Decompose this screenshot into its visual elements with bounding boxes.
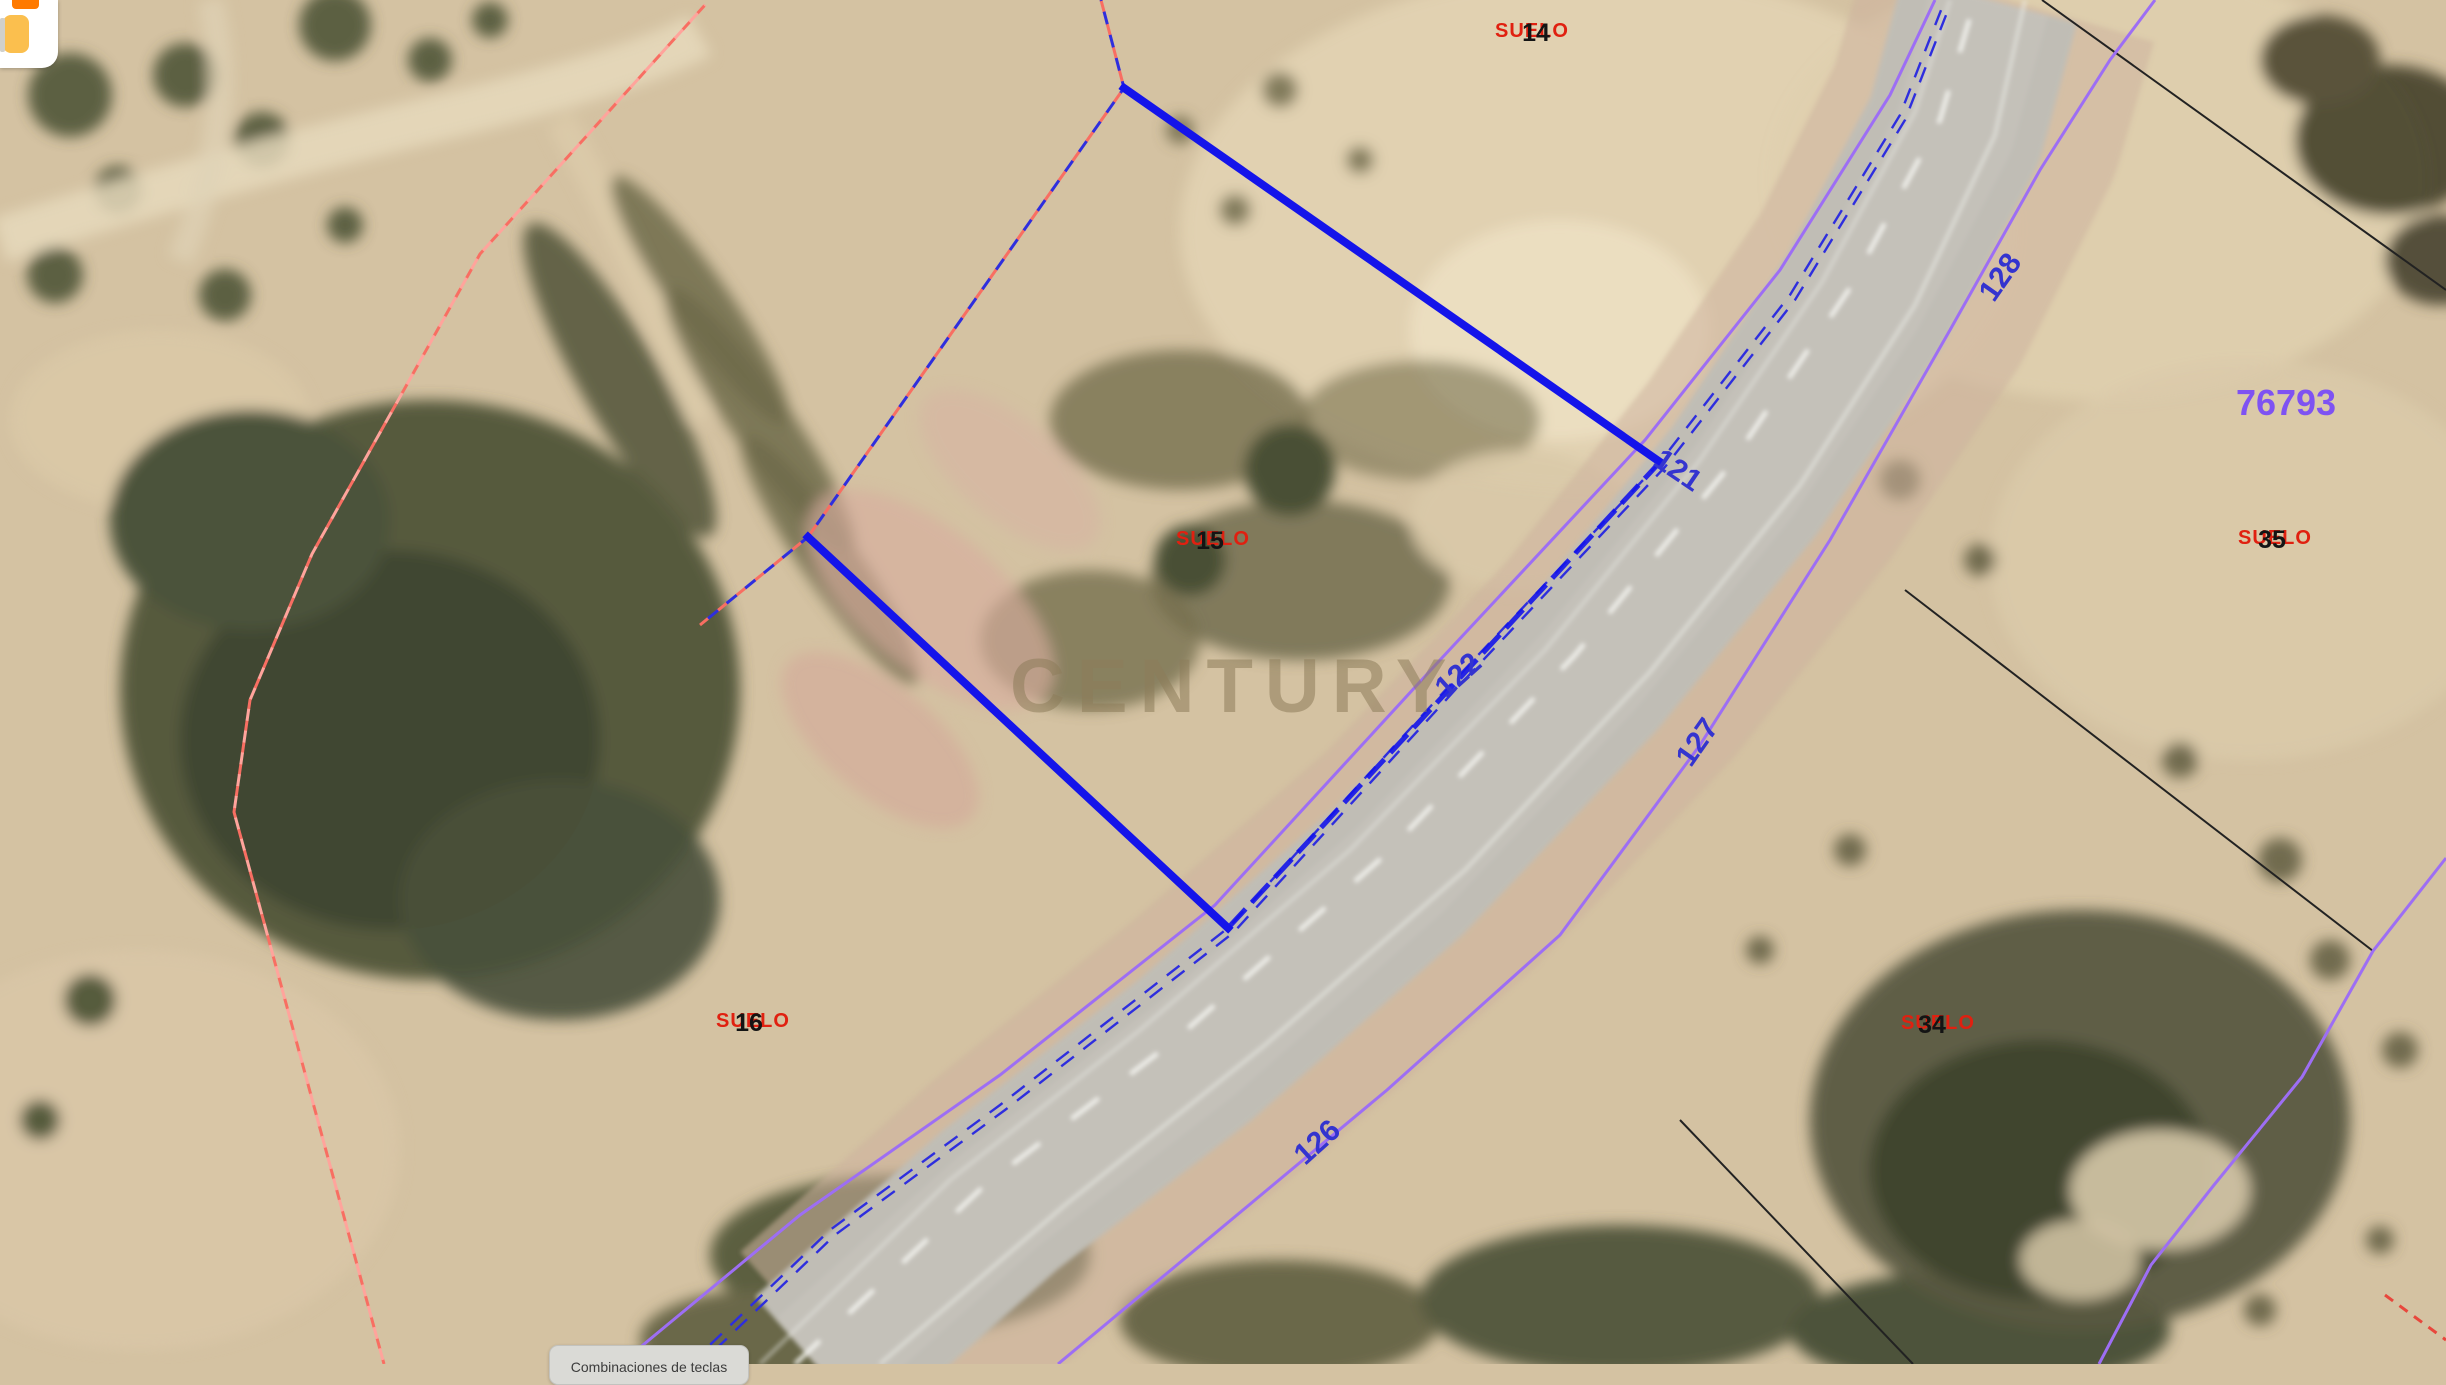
watermark-text: CENTURY [1010, 644, 1459, 729]
keyboard-shortcuts-button[interactable]: Combinaciones de teclas [549, 1345, 749, 1385]
svg-text:16: 16 [735, 1009, 763, 1037]
svg-text:34: 34 [1918, 1011, 1946, 1039]
svg-text:15: 15 [1196, 527, 1224, 555]
brand-logo-icon [0, 0, 58, 68]
logo-amber-block [3, 15, 29, 53]
aerial-imagery: CENTURY SUELO 14 SUELO 15 SUELO 16 SUELO… [0, 0, 2446, 1364]
logo-orange-block [12, 0, 39, 9]
aerial-map: CENTURY SUELO 14 SUELO 15 SUELO 16 SUELO… [0, 0, 2446, 1364]
svg-text:35: 35 [2258, 526, 2286, 554]
logo-gray-block [0, 18, 5, 52]
svg-text:14: 14 [1522, 19, 1550, 47]
map-canvas[interactable]: CENTURY SUELO 14 SUELO 15 SUELO 16 SUELO… [0, 0, 2446, 1364]
parcel-number-76793: 76793 [2236, 382, 2336, 423]
